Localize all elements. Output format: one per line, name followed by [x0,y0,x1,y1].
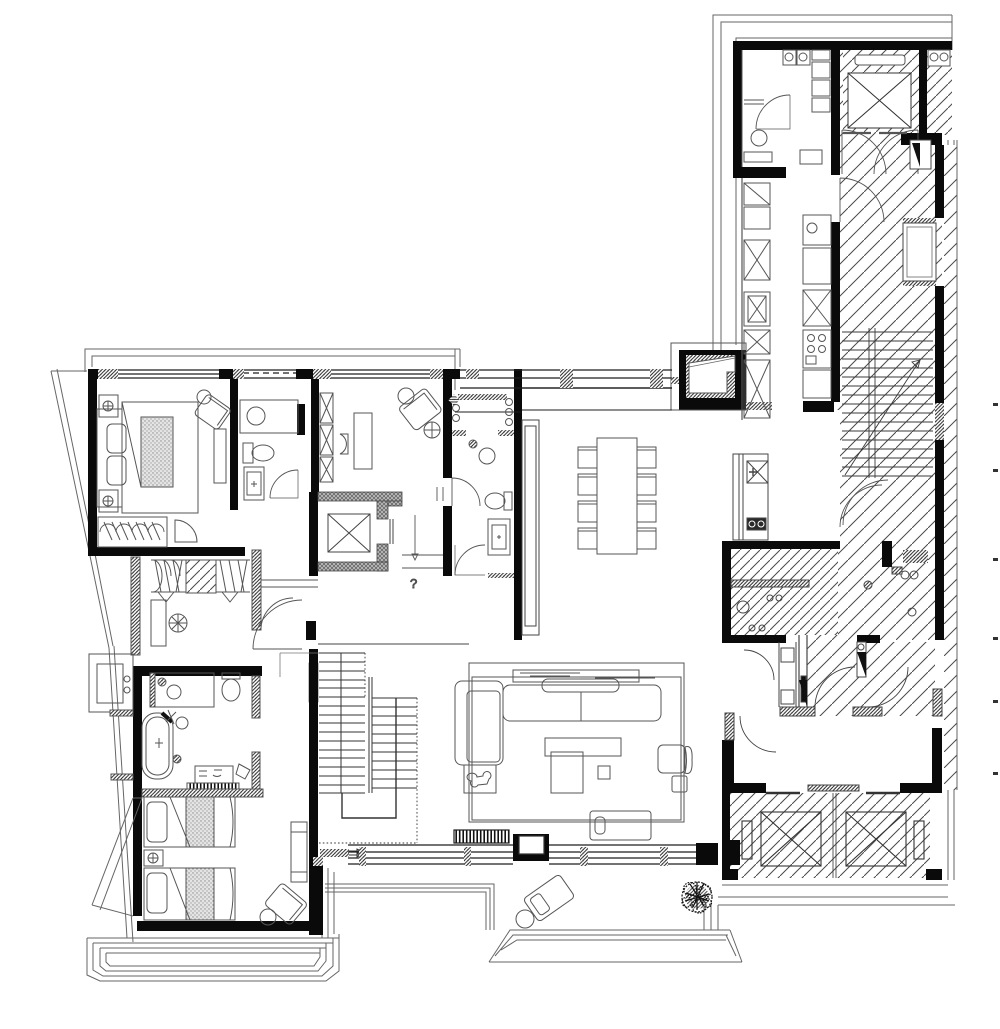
svg-text:?: ? [410,576,417,591]
